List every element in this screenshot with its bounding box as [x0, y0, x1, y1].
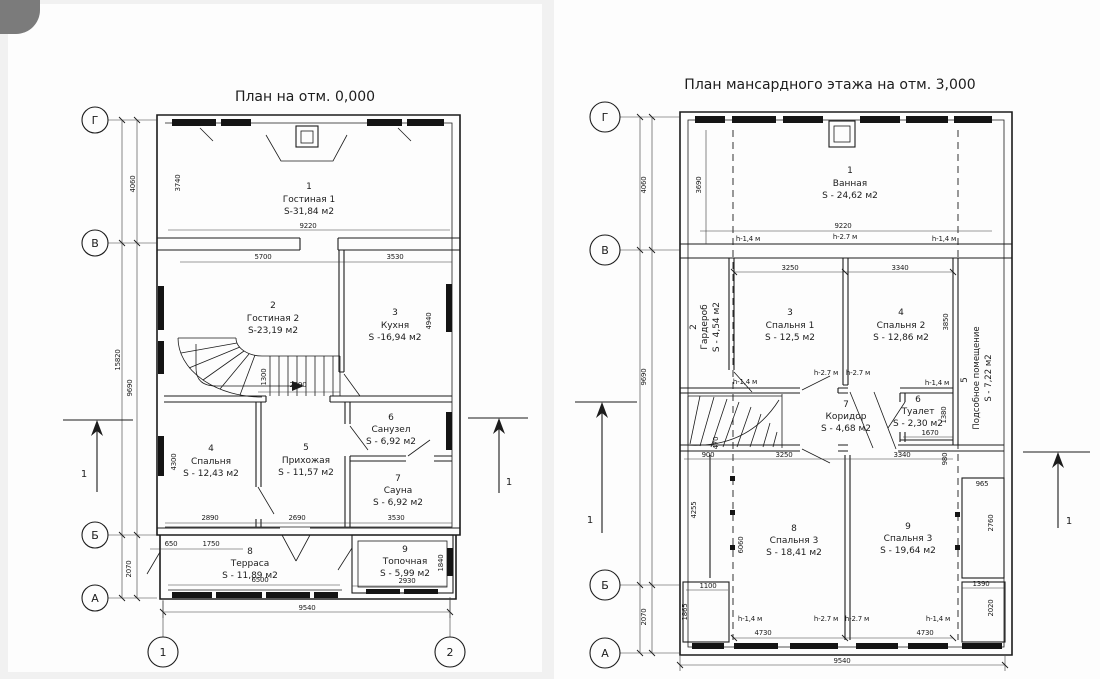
dim-label: 9220	[299, 222, 316, 230]
ceiling-height-label: h-2.7 м	[814, 369, 838, 377]
dim-label: 1865	[681, 603, 689, 620]
ceiling-height-label: h-1,4 м	[926, 615, 950, 623]
dim-label: 1390	[972, 580, 989, 588]
dim-label: 1380	[940, 406, 948, 423]
axis-label: Б	[91, 529, 99, 542]
dim-label: 2890	[201, 514, 218, 522]
room-name: Кухня	[381, 321, 409, 331]
room-area: S - 7,22 м2	[984, 354, 994, 401]
dim-label: 2690	[288, 514, 305, 522]
right-plan: План мансардного этажа на отм. 3,000	[575, 77, 1090, 671]
axis-label: 1	[160, 646, 167, 659]
room-name: Прихожая	[282, 456, 330, 466]
axis-label: В	[91, 237, 99, 250]
dim-label: 9540	[298, 604, 315, 612]
floorplan-drawing: План на отм. 0,000	[0, 0, 1100, 679]
axis-label: Г	[602, 111, 609, 124]
ceiling-height-label: h-1,4 м	[733, 378, 757, 386]
axis-label: А	[601, 647, 609, 660]
room-number: 8	[247, 547, 253, 557]
dim-label: 6500	[251, 576, 268, 584]
dim-label: 965	[976, 480, 989, 488]
room-number: 1	[306, 182, 312, 192]
ceiling-height-label: h-1,4 м	[736, 235, 760, 243]
room-area: S - 19,64 м2	[880, 546, 936, 556]
room-number: 1	[847, 166, 853, 176]
dim-label: 2690	[289, 381, 306, 389]
ceiling-height-label: h-1,4 м	[932, 235, 956, 243]
dim-label: 470	[712, 437, 720, 450]
room-name: Коридор	[826, 412, 867, 422]
dim-label: 9690	[640, 368, 648, 385]
room-name: Терраса	[230, 559, 269, 569]
room-area: S - 24,62 м2	[822, 191, 878, 201]
room-number: 2	[270, 301, 276, 311]
section-mark-label: 1	[81, 469, 87, 480]
room-area: S-23,19 м2	[248, 326, 298, 336]
dim-label: 1750	[202, 540, 219, 548]
room-number: 6	[915, 395, 921, 405]
left-plan-title: План на отм. 0,000	[235, 89, 375, 105]
ceiling-height-label: h-2.7 м	[845, 615, 869, 623]
room-number: 3	[392, 308, 398, 318]
dim-label: 9540	[833, 657, 850, 665]
dim-label: 6060	[737, 536, 745, 553]
right-plan-dim-labels: 9220 3250 3340 1670 900 3250 3340 965 11…	[640, 176, 995, 665]
room-name: Туалет	[901, 407, 935, 417]
left-plan-stairs	[178, 338, 340, 397]
left-plan-dim-labels: 9220 5700 3530 2690 2890 2690 3530 650 1…	[114, 174, 445, 612]
dim-label: 9220	[834, 222, 851, 230]
dim-label: 3530	[386, 253, 403, 261]
room-name: Спальня 3	[770, 536, 819, 546]
room-number: 8	[791, 524, 797, 534]
dim-label: 1840	[437, 554, 445, 571]
room-name: Спальня 2	[877, 321, 926, 331]
room-name: Спальня 1	[766, 321, 815, 331]
dim-label: 4940	[425, 312, 433, 329]
dim-label: 4060	[129, 175, 137, 192]
dim-label: 3690	[695, 176, 703, 193]
room-number: 5	[960, 377, 970, 383]
drawing-page: План на отм. 0,000	[0, 0, 1100, 679]
left-plan: План на отм. 0,000	[63, 89, 528, 667]
room-area: S - 12,86 м2	[873, 333, 929, 343]
ceiling-height-label: h-2.7 м	[814, 615, 838, 623]
dim-label: 1100	[699, 582, 716, 590]
section-mark-label: 1	[1066, 516, 1072, 527]
room-area: S - 2,30 м2	[893, 419, 943, 429]
axis-label: 2	[447, 646, 454, 659]
room-number: 9	[402, 545, 408, 555]
dim-label: 2070	[640, 608, 648, 625]
dim-label: 4730	[916, 629, 933, 637]
room-number: 2	[689, 324, 699, 330]
dim-label: 2760	[987, 514, 995, 531]
room-area: S - 18,41 м2	[766, 548, 822, 558]
room-name: Гардероб	[700, 304, 710, 350]
room-area: S-31,84 м2	[284, 207, 334, 217]
room-number: 3	[787, 308, 793, 318]
dim-label: 4730	[754, 629, 771, 637]
dim-label: 3340	[891, 264, 908, 272]
room-name: Подсобное помещение	[972, 326, 982, 429]
room-name: Сауна	[384, 486, 413, 496]
axis-label: Г	[92, 114, 99, 127]
dim-label: 980	[941, 453, 949, 466]
axis-label: В	[601, 244, 609, 257]
room-area: S -16,94 м2	[369, 333, 422, 343]
right-plan-title: План мансардного этажа на отм. 3,000	[684, 77, 975, 93]
axis-label: А	[91, 592, 99, 605]
room-name: Санузел	[371, 425, 410, 435]
right-plan-axis-marks: Г В Б А	[590, 102, 680, 668]
ceiling-height-label: h-2.7 м	[846, 369, 870, 377]
room-number: 7	[395, 474, 401, 484]
room-area: S - 12,43 м2	[183, 469, 239, 479]
dim-label: 3850	[942, 313, 950, 330]
section-mark-label: 1	[506, 477, 512, 488]
dim-label: 2020	[987, 599, 995, 616]
dim-label: 2070	[125, 560, 133, 577]
room-number: 4	[898, 308, 904, 318]
room-area: S - 6,92 м2	[366, 437, 416, 447]
dim-label: 2930	[398, 577, 415, 585]
room-area: S - 12,5 м2	[765, 333, 815, 343]
room-number: 6	[388, 413, 394, 423]
room-name: Гостиная 1	[283, 195, 335, 205]
room-name: Спальня 3	[884, 534, 933, 544]
section-mark-label: 1	[587, 515, 593, 526]
dim-label: 650	[165, 540, 178, 548]
room-number: 9	[905, 522, 911, 532]
room-name: Спальня	[191, 457, 231, 467]
dim-label: 4300	[170, 453, 178, 470]
dim-label: 9690	[126, 379, 134, 396]
room-area: S - 11,89 м2	[222, 571, 278, 581]
dim-label: 1300	[260, 368, 268, 385]
right-plan-stairs	[686, 394, 782, 448]
room-area: S - 4,68 м2	[821, 424, 871, 434]
dim-label: 4255	[690, 501, 698, 518]
room-area: S - 11,57 м2	[278, 468, 334, 478]
ceiling-height-label: h-1,4 м	[925, 379, 949, 387]
dim-label: 3740	[174, 174, 182, 191]
dim-label: 4060	[640, 176, 648, 193]
dim-label: 3530	[387, 514, 404, 522]
room-number: 4	[208, 444, 214, 454]
room-name: Топочная	[382, 557, 428, 567]
room-name: Ванная	[833, 179, 867, 189]
room-name: Гостиная 2	[247, 314, 299, 324]
room-number: 7	[843, 400, 849, 410]
dim-label: 1670	[921, 429, 938, 437]
dim-label: 3340	[893, 451, 910, 459]
room-area: S - 4,54 м2	[712, 302, 722, 352]
dim-label: 3250	[775, 451, 792, 459]
room-number: 5	[303, 443, 309, 453]
dim-label: 5700	[254, 253, 271, 261]
dim-label: 900	[702, 451, 715, 459]
ceiling-height-label: h-1,4 м	[738, 615, 762, 623]
dim-label: 3250	[781, 264, 798, 272]
ceiling-height-label: h-2.7 м	[833, 233, 857, 241]
axis-label: Б	[601, 579, 609, 592]
room-area: S - 6,92 м2	[373, 498, 423, 508]
dim-label: 15820	[114, 349, 122, 370]
